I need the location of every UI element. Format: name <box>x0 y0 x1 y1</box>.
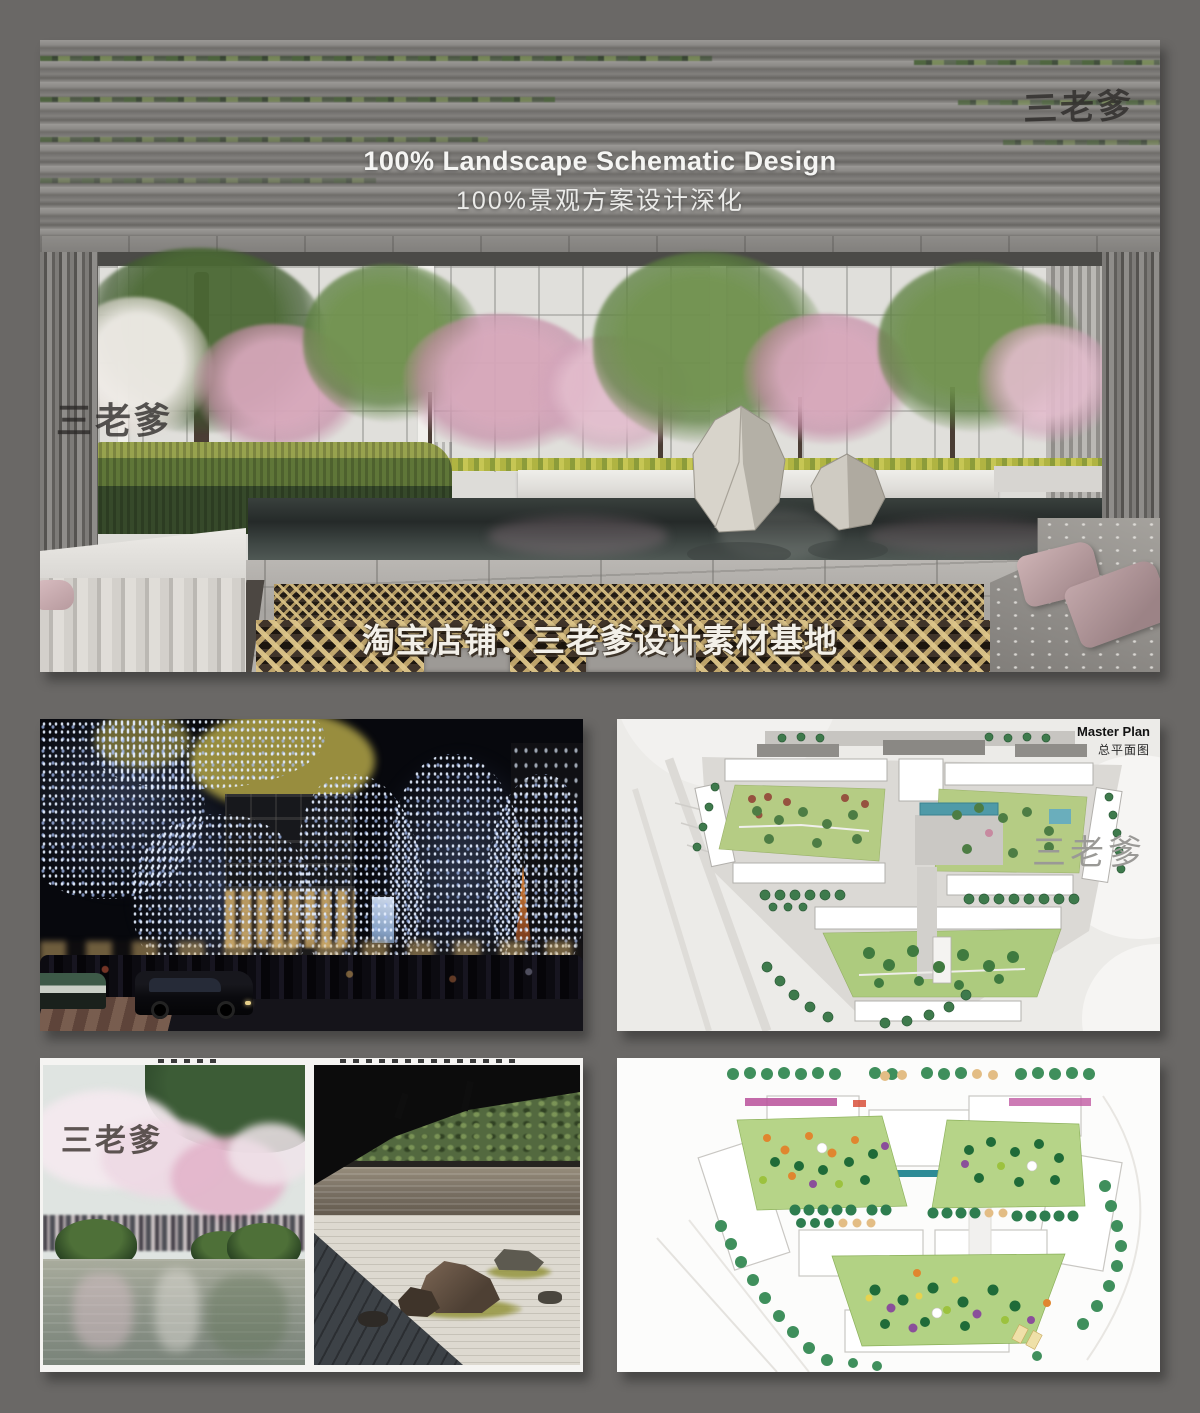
blossom-mass-white <box>228 1123 305 1185</box>
hero-render-image: 100% Landscape Schematic Design 100%景观方案… <box>40 40 1160 672</box>
pergola-planting-strip <box>40 97 555 102</box>
zen-rock-garden-photo <box>314 1065 580 1365</box>
cherry-blossom-park-photo: 三老爹 <box>43 1065 305 1365</box>
pergola-planting-strip <box>40 56 712 61</box>
night-illumination-photo <box>40 719 583 1031</box>
watermark-top-right: 三老爹 <box>1022 78 1135 131</box>
car-windows <box>149 978 221 992</box>
pergola-planting-strip <box>914 60 1160 65</box>
small-rock <box>538 1291 562 1304</box>
car-wheel <box>217 1001 235 1019</box>
pergola-planting-strip <box>1003 140 1160 145</box>
master-plan-drawing: Master Plan 总平面图 三老爹 <box>617 719 1160 1031</box>
earthen-wall <box>314 1161 580 1215</box>
car-wheel <box>151 1001 169 1019</box>
master-plan-title-chinese: 总平面图 <box>1098 741 1150 758</box>
water-feature-wall <box>994 466 1102 492</box>
pond-reflection <box>73 1273 133 1349</box>
cushion-pink <box>40 580 74 610</box>
pond-reflection <box>155 1269 199 1351</box>
watermark-photo: 三老爹 <box>61 1115 163 1160</box>
feature-rocks <box>643 402 903 572</box>
garden-reference-photos: 三老爹 <box>40 1058 583 1372</box>
planting-plan-drawing <box>617 1058 1160 1372</box>
car-headlight <box>245 1001 251 1005</box>
watermark-master-plan: 三老爹 <box>1032 825 1146 874</box>
master-plan-svg <box>617 719 1160 1031</box>
taxi-green <box>40 973 106 1009</box>
crowd-silhouettes <box>40 955 583 1003</box>
watermark-shop-name: 淘宝店铺：三老爹设计素材基地 <box>40 614 1160 662</box>
pergola-planting-strip <box>40 137 488 142</box>
tree-canopy-pink <box>978 324 1118 442</box>
planting-plan-svg <box>617 1058 1160 1372</box>
taxi-black <box>135 971 253 1015</box>
watermark-left: 三老爹 <box>56 392 173 444</box>
pool-reflection <box>488 516 668 556</box>
cropped-caption-marks <box>340 1059 515 1063</box>
courtyard-scene <box>98 252 1102 572</box>
rock-on-veranda <box>358 1311 388 1327</box>
master-plan-title-english: Master Plan <box>1077 724 1150 739</box>
collage-page: 100% Landscape Schematic Design 100%景观方案… <box>0 0 1200 1413</box>
hero-title-chinese: 100%景观方案设计深化 <box>40 181 1160 217</box>
hero-title-english: 100% Landscape Schematic Design <box>40 146 1160 177</box>
pond-reflection <box>207 1275 287 1355</box>
cropped-caption-marks <box>158 1059 220 1063</box>
